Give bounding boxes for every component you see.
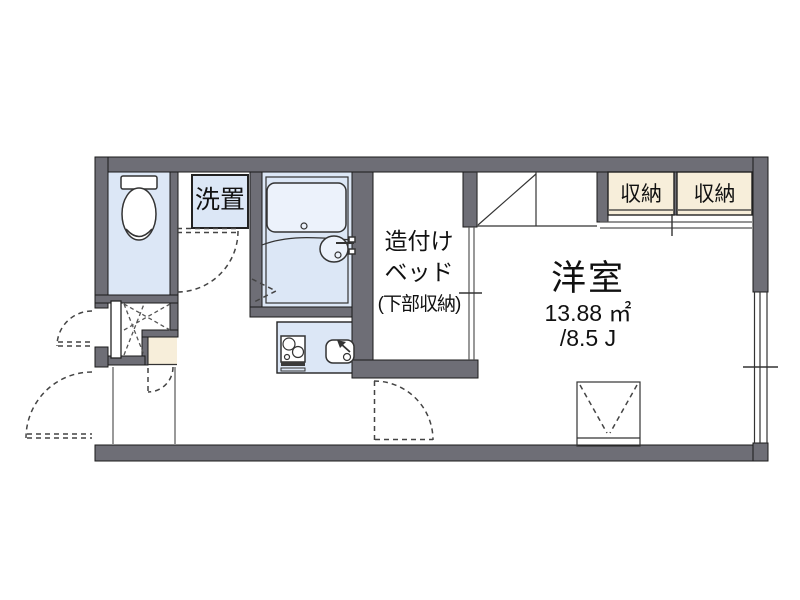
room-area-sqm: 13.88 ㎡ xyxy=(518,301,658,326)
bed-label-line1: 造付け xyxy=(361,229,477,254)
entry-door-swing-arc xyxy=(26,372,92,438)
room-name: 洋室 xyxy=(518,260,658,299)
wall-genkan-top xyxy=(142,330,178,337)
wall-bed-right-top xyxy=(463,172,477,227)
wall-left-upper xyxy=(95,157,108,308)
floorplan-canvas: 洗置 造付け ベッド (下部収納) 洋室 13.88 ㎡ /8.5 J 収納 収… xyxy=(0,0,800,600)
window-icon xyxy=(743,292,778,443)
washbasin-icon xyxy=(320,236,348,262)
wall-right-lower xyxy=(753,443,768,461)
window-box xyxy=(577,382,640,446)
wall-bed-bottom xyxy=(352,360,478,378)
washer-space-label: 洗置 xyxy=(192,187,248,215)
wall-ladder-right xyxy=(597,172,608,222)
genkan-floor xyxy=(148,337,177,364)
bed-label-line2: ベッド xyxy=(361,260,477,285)
door-swing-arc xyxy=(57,311,92,346)
wall-bath-bottom xyxy=(250,307,360,317)
wall-toilet-right xyxy=(170,172,178,295)
bed-label-line3: (下部収納) xyxy=(361,295,477,316)
wall-top xyxy=(95,157,768,172)
closet-left-label: 収納 xyxy=(608,183,674,206)
hall-door-swing-arc xyxy=(177,231,238,292)
wall-bath-left xyxy=(250,172,262,317)
wall-left-mid xyxy=(95,347,108,367)
toilet-icon xyxy=(121,176,157,240)
wall-below-toilet xyxy=(95,295,178,303)
room-door-swing-arc xyxy=(374,381,433,440)
closet-right-label: 収納 xyxy=(677,183,752,206)
door-panel xyxy=(111,301,121,358)
western-room-label: 洋室 13.88 ㎡ /8.5 J xyxy=(518,260,658,351)
entry-floor-lines xyxy=(113,367,175,444)
built-in-bed-label: 造付け ベッド (下部収納) xyxy=(361,229,477,315)
wall-right-upper xyxy=(753,157,768,292)
genkan-door-swing-arc xyxy=(148,367,173,392)
wall-bottom xyxy=(95,445,768,461)
wall-storage-right xyxy=(170,303,178,331)
loft-ladder-icon xyxy=(477,172,597,226)
room-area-jo: /8.5 J xyxy=(518,326,658,351)
